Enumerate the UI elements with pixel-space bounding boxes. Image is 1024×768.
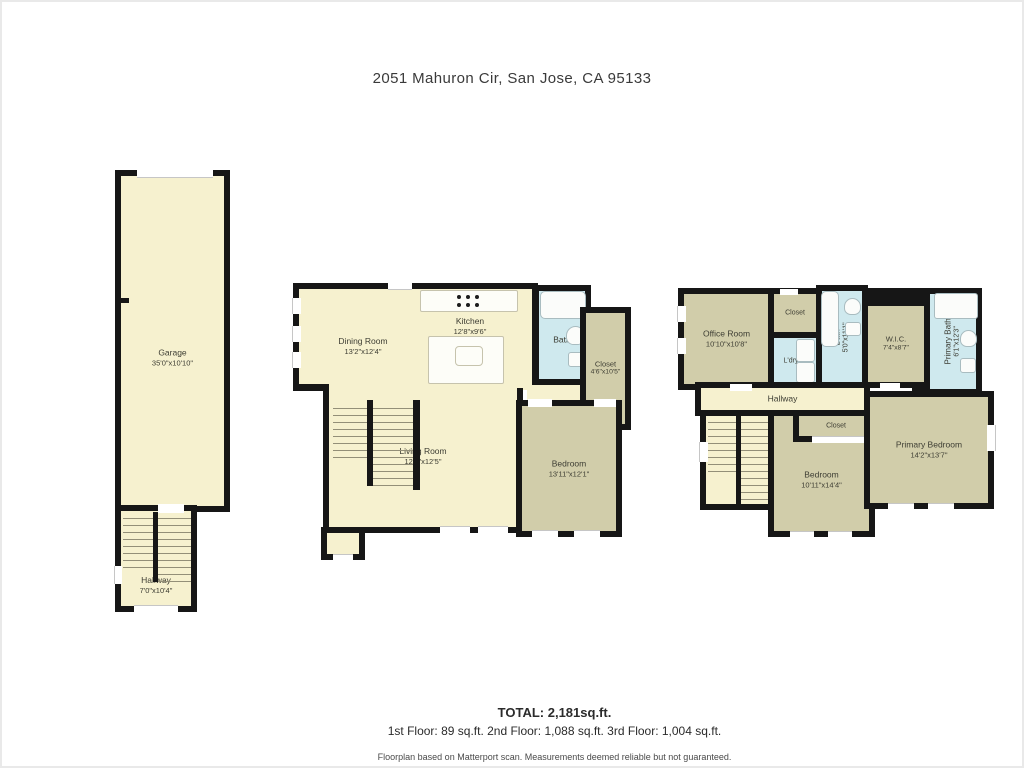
door-opening bbox=[880, 383, 900, 390]
room-garage: Garage 35'0"x10'10" bbox=[115, 170, 230, 512]
window-opening bbox=[292, 298, 301, 314]
window-opening bbox=[699, 442, 708, 462]
room-label: Hallway bbox=[701, 393, 864, 404]
window-opening bbox=[594, 399, 616, 407]
room-label: Bedroom 10'11"x14'4" bbox=[774, 470, 869, 491]
garage-door-opening bbox=[137, 169, 213, 178]
room-label: Garage 35'0"x10'10" bbox=[121, 347, 224, 368]
floorplan-image: 2051 Mahuron Cir, San Jose, CA 95133 Gar… bbox=[0, 0, 1024, 768]
footer-totals: TOTAL: 2,181sq.ft. 1st Floor: 89 sq.ft. … bbox=[85, 705, 1024, 738]
window-opening bbox=[440, 526, 470, 535]
window-opening bbox=[574, 530, 600, 539]
door-opening bbox=[333, 554, 353, 562]
door-opening bbox=[780, 289, 798, 295]
window-opening bbox=[928, 503, 954, 511]
stairs-2f-left bbox=[333, 402, 367, 464]
window-opening bbox=[677, 306, 686, 322]
room-wic: W.I.C. 7'4"x8'7" bbox=[862, 300, 930, 388]
window-opening bbox=[114, 566, 122, 584]
window-opening bbox=[292, 326, 301, 342]
room-primary-bedroom: Primary Bedroom 14'2"x13'7" bbox=[864, 391, 994, 509]
floor-breakdown: 1st Floor: 89 sq.ft. 2nd Floor: 1,088 sq… bbox=[85, 724, 1024, 738]
wall-stub bbox=[121, 298, 129, 303]
window-opening bbox=[478, 526, 508, 535]
room-label: Bedroom 13'11"x12'1" bbox=[522, 458, 616, 479]
door-opening bbox=[730, 384, 752, 391]
window-opening bbox=[888, 503, 914, 511]
kitchen-counter bbox=[420, 290, 518, 312]
room-closet-3f-top: Closet bbox=[768, 288, 822, 338]
room-label: Closet 4'6"x10'5" bbox=[586, 359, 625, 378]
room-label: Closet bbox=[799, 421, 873, 430]
room-label: Primary Bedroom 14'2"x13'7" bbox=[870, 440, 988, 461]
window-opening bbox=[292, 352, 301, 368]
closet-slider-opening bbox=[812, 436, 868, 443]
window-opening bbox=[388, 282, 412, 290]
stairs-2f-right bbox=[373, 402, 413, 488]
toilet bbox=[960, 330, 977, 347]
disclaimer: Floorplan based on Matterport scan. Meas… bbox=[85, 752, 1024, 762]
stairs-3f-left bbox=[708, 416, 736, 476]
sink bbox=[960, 358, 976, 373]
island-sink bbox=[455, 346, 483, 366]
room-office: Office Room 10'10"x10'8" bbox=[678, 288, 775, 390]
bathtub bbox=[821, 291, 839, 347]
total-sqft: TOTAL: 2,181sq.ft. bbox=[85, 705, 1024, 720]
washer bbox=[796, 339, 815, 362]
entry-door-opening bbox=[134, 605, 178, 614]
window-opening bbox=[532, 530, 558, 539]
window-opening bbox=[677, 338, 686, 354]
page-title: 2051 Mahuron Cir, San Jose, CA 95133 bbox=[0, 70, 1024, 87]
stairs-3f-right bbox=[741, 416, 771, 504]
stove-burners bbox=[457, 295, 461, 299]
stair-side-wall bbox=[413, 400, 420, 490]
room-label: Office Room 10'10"x10'8" bbox=[684, 329, 769, 350]
stairs-1f-left bbox=[123, 512, 153, 568]
window-opening bbox=[828, 531, 852, 539]
dryer bbox=[796, 362, 815, 383]
stairs-1f-right bbox=[158, 512, 191, 582]
room-label: Closet bbox=[774, 308, 816, 317]
window-opening bbox=[987, 425, 996, 451]
sink bbox=[845, 322, 861, 336]
toilet bbox=[844, 298, 861, 315]
room-label: W.I.C. 7'4"x8'7" bbox=[868, 335, 924, 354]
shower bbox=[934, 293, 978, 319]
window-opening bbox=[790, 531, 814, 539]
door-opening bbox=[528, 399, 552, 407]
room-bedroom-2f: Bedroom 13'11"x12'1" bbox=[516, 400, 622, 537]
